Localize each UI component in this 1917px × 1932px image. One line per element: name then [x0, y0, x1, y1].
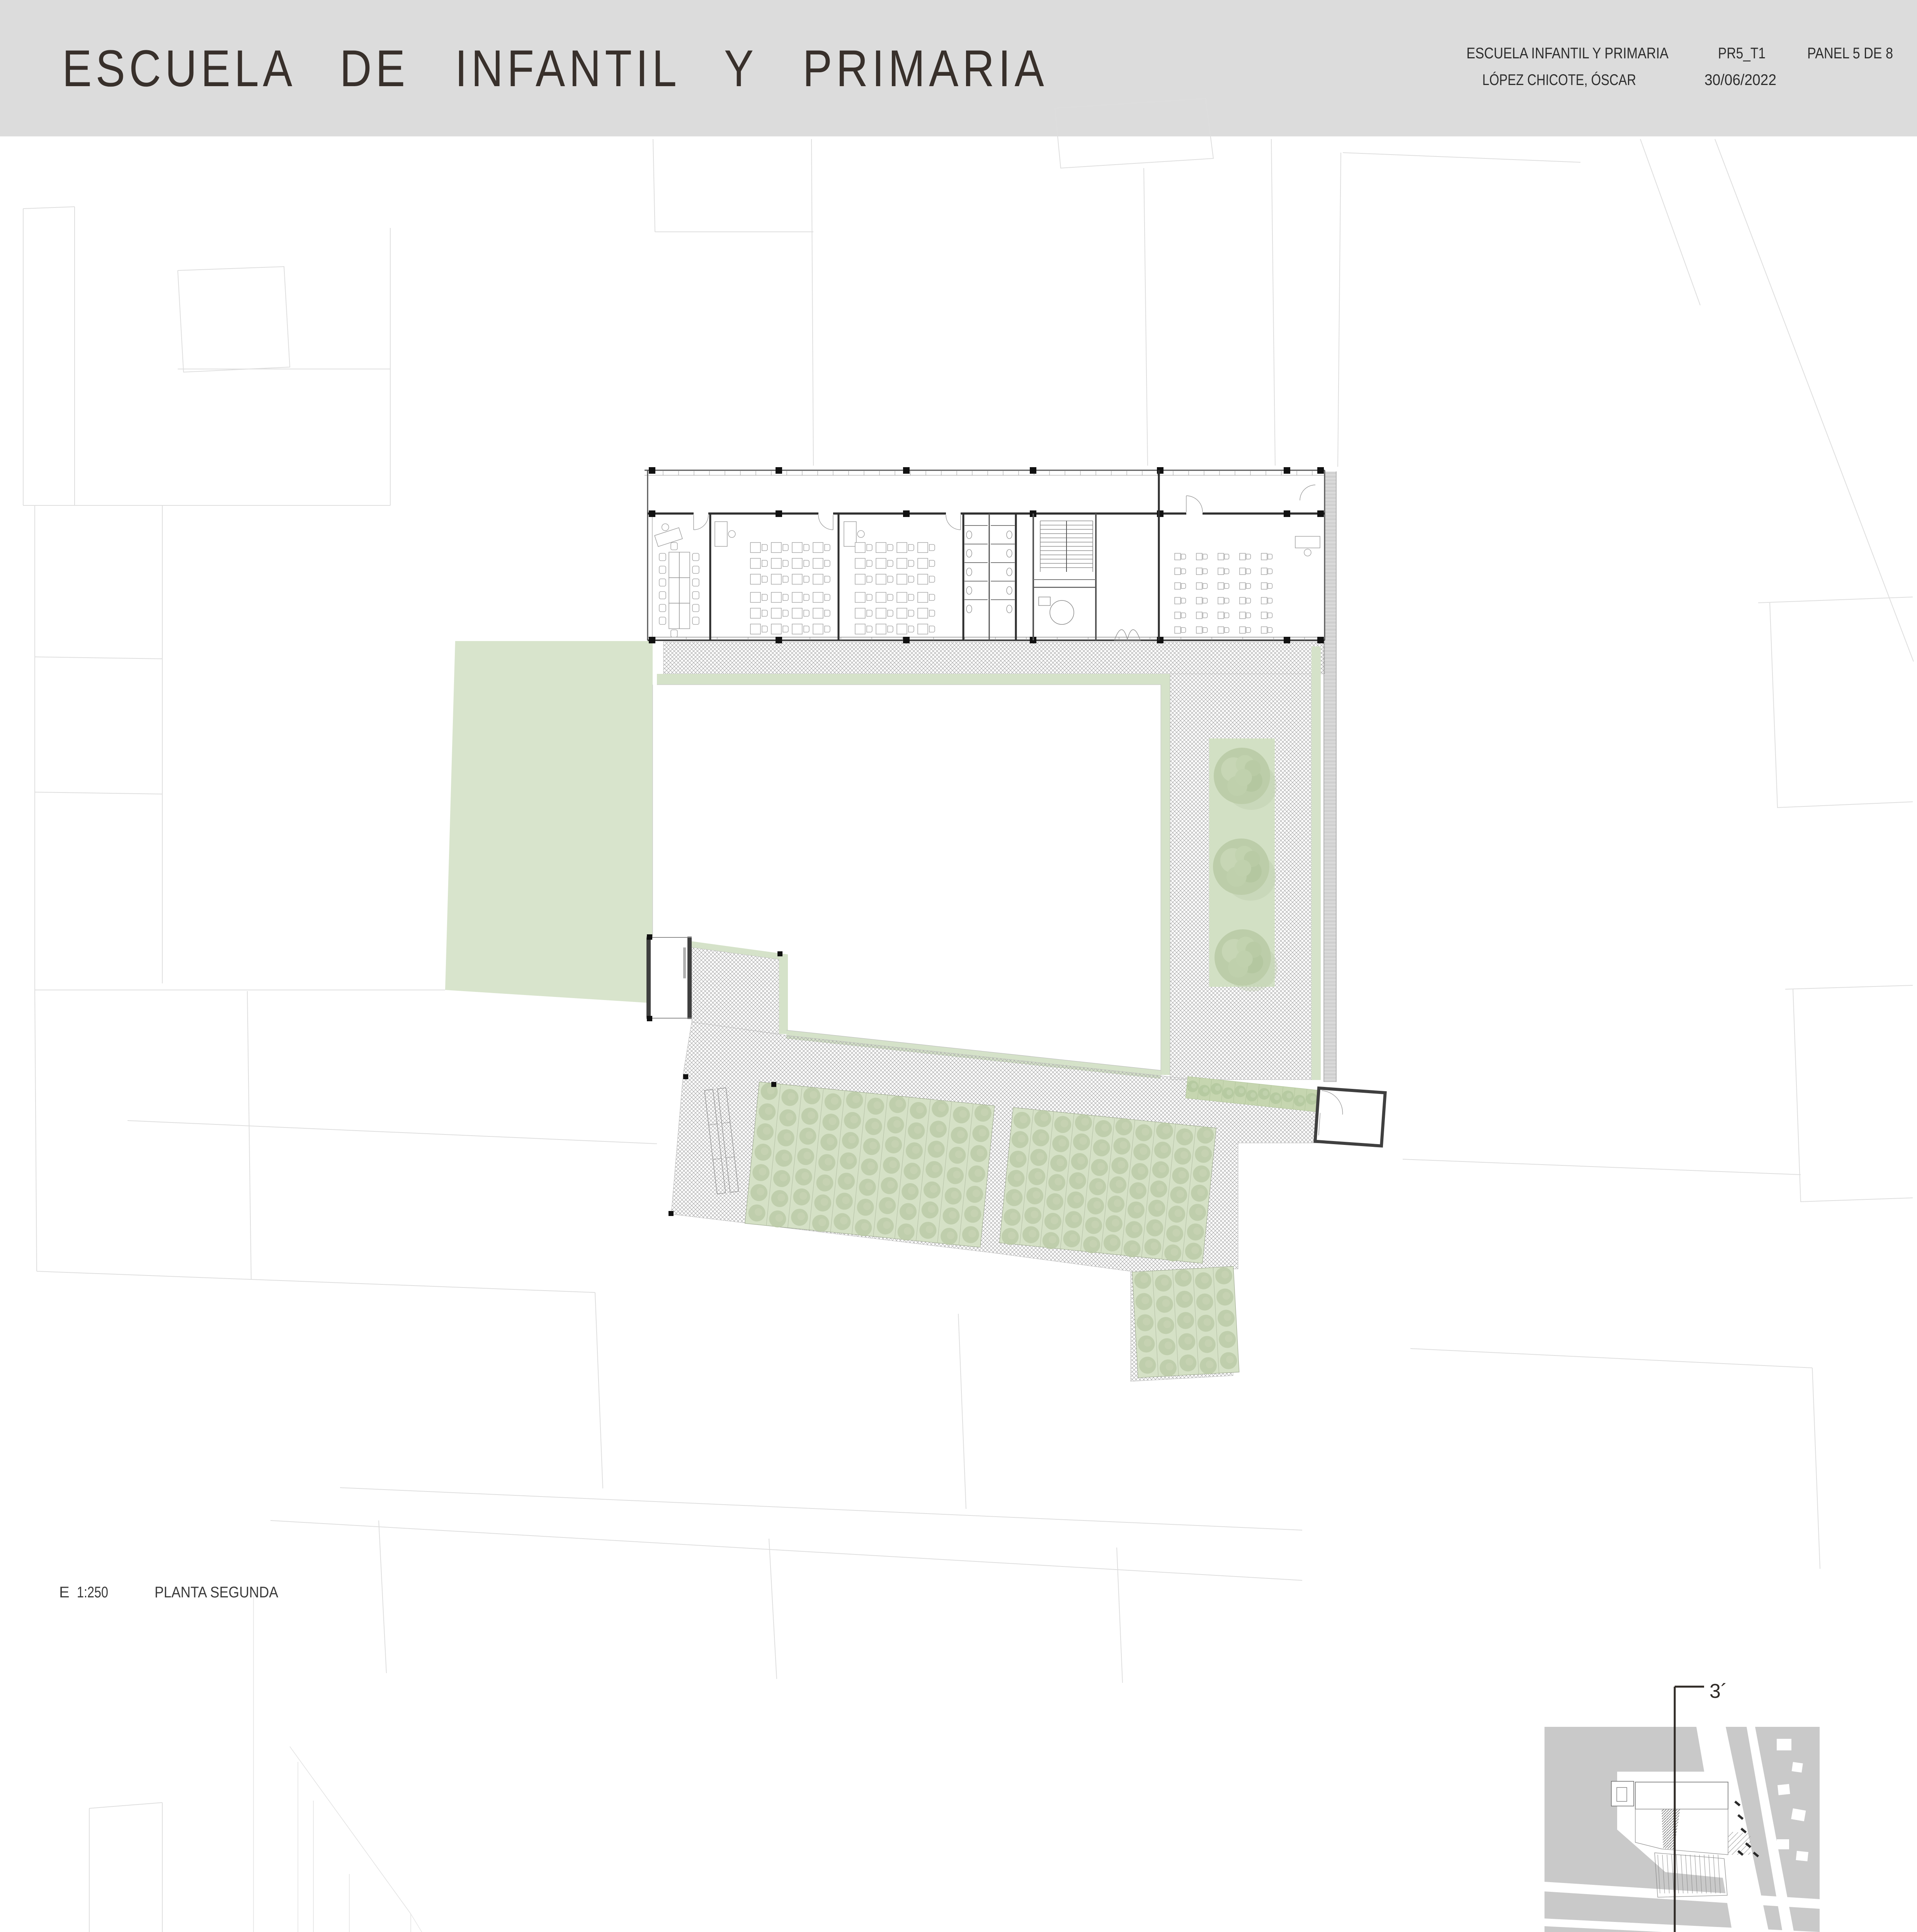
svg-text:LÓPEZ CHICOTE, ÓSCAR: LÓPEZ CHICOTE, ÓSCAR [1482, 71, 1636, 88]
svg-text:3´: 3´ [1709, 1680, 1727, 1702]
svg-text:PR5_T1: PR5_T1 [1718, 45, 1766, 62]
svg-text:ESCUELA DE INFANTIL Y PRIMARIA: ESCUELA DE INFANTIL Y PRIMARIA [62, 40, 1048, 97]
svg-text:PANEL 5 DE 8: PANEL 5 DE 8 [1807, 45, 1893, 62]
svg-text:E: E [59, 1584, 70, 1601]
svg-text:ESCUELA INFANTIL Y PRIMARIA: ESCUELA INFANTIL Y PRIMARIA [1466, 45, 1669, 62]
svg-text:30/06/2022: 30/06/2022 [1704, 71, 1776, 88]
svg-text:PLANTA SEGUNDA: PLANTA SEGUNDA [155, 1584, 278, 1601]
svg-text:1:250: 1:250 [77, 1584, 108, 1601]
